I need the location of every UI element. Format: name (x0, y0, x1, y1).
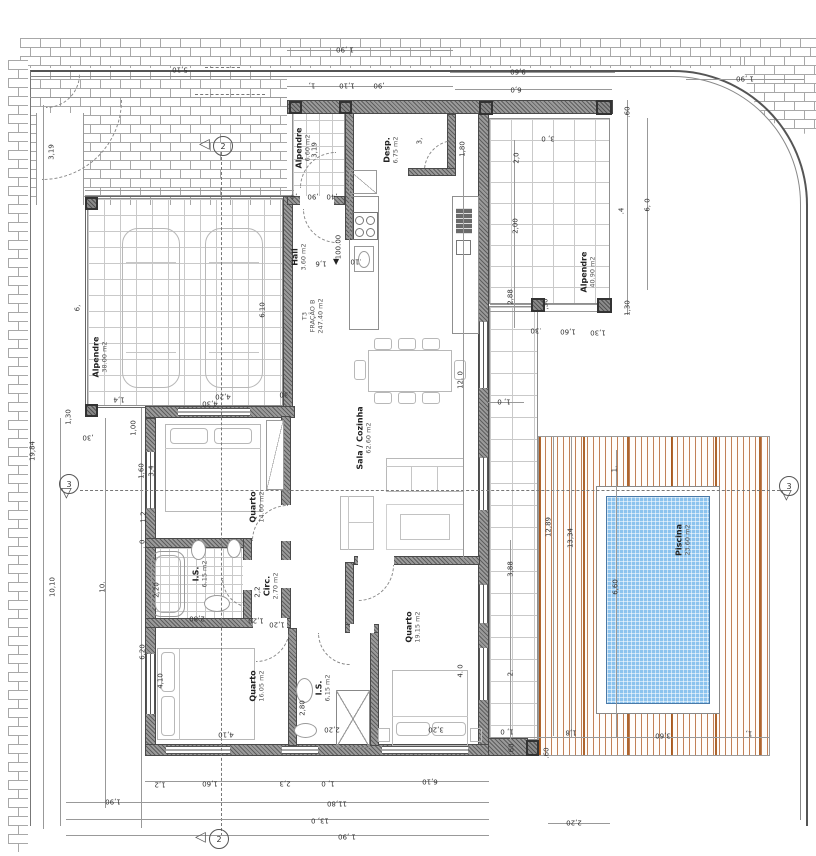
dimension-label: 10. (100, 581, 107, 592)
room-area: 6,15 m2 (324, 674, 332, 701)
dimension-label: 1, 0 (321, 780, 334, 787)
labels-layer: 1 ,909,606,01,1,10,905,101 ,903, 0.602,0… (0, 0, 816, 856)
dimension-label: 12. 0 (458, 371, 465, 389)
dimension-label: 3,19 (49, 144, 56, 160)
dimension-label: 6, (75, 305, 82, 312)
dimension-label: 10,10 (50, 577, 57, 597)
dimension-label: 2,88 (508, 289, 515, 305)
dimension-label: 2,2 (255, 586, 262, 597)
dimension-label: 1,60 (139, 463, 146, 479)
dimension-label: 1,6 (315, 260, 326, 267)
room-label: Desp.6.75 m2 (382, 136, 399, 163)
dimension-label: 3,4 (149, 465, 156, 476)
dimension-label: 4,10 (218, 731, 234, 738)
dimension-label: 3,88 (508, 561, 515, 577)
dimension-label: 1,20 (248, 617, 264, 624)
section-marker: 2 (213, 136, 233, 156)
dimension-label: 2,80 (189, 615, 205, 622)
dimension-label: 2,20 (324, 726, 340, 733)
room-area: 3.60 m2 (300, 243, 308, 270)
unit-label: T3FRAÇÃO B247.40 m2 (301, 298, 324, 333)
room-area: 19.15 m2 (414, 611, 422, 642)
dimension-label: ,90 (307, 193, 318, 200)
dimension-label: 6.10 (260, 302, 267, 318)
dimension-label: 12,89 (546, 517, 553, 537)
room-area: 247.40 m2 (317, 298, 325, 333)
room-area: 14.60 m2 (258, 491, 266, 522)
room-area: 6.75 m2 (392, 136, 400, 163)
section-marker: 2 (209, 829, 229, 849)
section-marker-arrow: ▽ (781, 488, 792, 502)
dimension-label: 3,19 (312, 142, 319, 158)
dimension-label: ,4 (291, 193, 298, 200)
dimension-label: 9,60 (510, 68, 526, 75)
room-label: Quarto16.05 m2 (248, 670, 265, 701)
dimension-label: 6,20 (140, 644, 147, 660)
dimension-label: 2,80 (300, 700, 307, 716)
dimension-label: 2,0 (514, 152, 521, 163)
floor-plan: ▼ 1 ,909,606,01,1,10,905,101 ,903, 0.602… (0, 0, 816, 856)
dimension-label: 2. (508, 670, 515, 677)
dimension-label: 6,10 (422, 778, 438, 785)
dimension-label: 1,30 (590, 329, 606, 336)
dimension-label: 1,2 (154, 781, 165, 788)
dimension-label: 4. 0 (458, 664, 465, 677)
dimension-label: 13,34 (568, 528, 575, 548)
dimension-label: 1,80 (460, 141, 467, 157)
dimension-label: 1, (746, 730, 753, 737)
dimension-label: 1,00 (131, 420, 138, 436)
room-area: 38.00 m2 (101, 337, 109, 378)
dimension-label: 1 ,90 (338, 833, 356, 840)
dimension-label: 19,84 (30, 441, 37, 461)
section-marker-arrow: ▽ (61, 486, 72, 500)
dimension-label: ,30 (543, 298, 550, 309)
dimension-label: 2,3 (279, 780, 290, 787)
dimension-label: 1 ,90 (736, 75, 754, 82)
dimension-label: 2,20 (154, 582, 161, 598)
dimension-label: 1,20 (269, 621, 285, 628)
dimension-label: 6,60 (613, 579, 620, 595)
dimension-label: 1, 0 (497, 398, 510, 405)
dimension-label: 1,30 (625, 300, 632, 316)
room-label: Circ.2.70 m2 (262, 572, 279, 599)
dimension-label: 1,10 (339, 82, 355, 89)
dimension-label: ,40 (326, 193, 337, 200)
dimension-label: 1 ,90 (336, 46, 354, 53)
room-label: I.S.6.15 m2 (191, 560, 208, 587)
dimension-label: 1,60 (560, 328, 576, 335)
dimension-label: 2,00 (513, 218, 520, 234)
dimension-label: 1,8 (565, 729, 576, 736)
dimension-label: .60 (625, 106, 632, 117)
dimension-label: 1,4 (113, 396, 124, 403)
room-area: 40.90 m2 (589, 252, 597, 293)
dimension-label: 5,10 (172, 66, 188, 73)
dimension-label: 1,2 (141, 511, 148, 522)
room-label: Quarto14.60 m2 (248, 491, 265, 522)
room-label: Hall3.60 m2 (290, 243, 307, 270)
room-area: 62.60 m2 (365, 406, 373, 469)
dimension-label: 3,20 (428, 726, 444, 733)
dimension-label: 2,20 (566, 819, 582, 826)
dimension-label: 4,20 (215, 393, 231, 400)
dimension-label: 3, (417, 138, 424, 145)
section-marker-arrow: ◁ (195, 830, 206, 844)
room-label: I.S.6,15 m2 (314, 674, 331, 701)
dimension-label: 1,30 (66, 409, 73, 425)
room-label: Piscina23.60 m2 (674, 524, 691, 556)
dimension-label: ,30 (82, 434, 93, 441)
room-area: 2.70 m2 (272, 572, 280, 599)
dimension-label: 6,0 (510, 86, 521, 93)
section-marker-arrow: ◁ (199, 137, 210, 151)
dimension-label: .60 (544, 747, 551, 758)
dimension-label: 3, 0 (541, 135, 554, 142)
dimension-label: .60 (509, 743, 516, 754)
room-area: 6.60 m2 (304, 128, 312, 169)
room-label: Alpendre40.90 m2 (579, 252, 596, 293)
dimension-label: . 0 (140, 540, 147, 549)
dimension-label: 100.00 (336, 235, 343, 260)
dimension-label: 13, 0 (311, 817, 329, 824)
dimension-label: 6, 0 (645, 198, 652, 211)
room-area: 6.15 m2 (201, 560, 209, 587)
room-label: Quarto19.15 m2 (404, 611, 421, 642)
room-label: Alpendre6.60 m2 (294, 128, 311, 169)
dimension-label: .30 (530, 327, 541, 334)
dimension-label: .4 (619, 208, 626, 215)
dimension-label: 1, (309, 82, 316, 89)
dimension-label: 3,60 (655, 732, 671, 739)
dimension-label: .10 (350, 258, 361, 265)
dimension-label: 1,60 (202, 780, 218, 787)
room-area: 16.05 m2 (258, 670, 266, 701)
room-label: Alpendre38.00 m2 (91, 337, 108, 378)
dimension-label: 1. (612, 466, 619, 473)
dimension-label: 1, 0 (500, 728, 513, 735)
dimension-label: 4,30 (202, 400, 218, 407)
dimension-label: ,90 (373, 82, 384, 89)
dimension-label: 11,80 (327, 800, 347, 807)
dimension-label: 1,90 (105, 798, 121, 805)
room-label: Sala / Cozinha62.60 m2 (355, 406, 372, 469)
dimension-label: ,30 (279, 391, 290, 398)
dimension-label: 4,10 (158, 673, 165, 689)
room-area: 23.60 m2 (684, 524, 692, 556)
